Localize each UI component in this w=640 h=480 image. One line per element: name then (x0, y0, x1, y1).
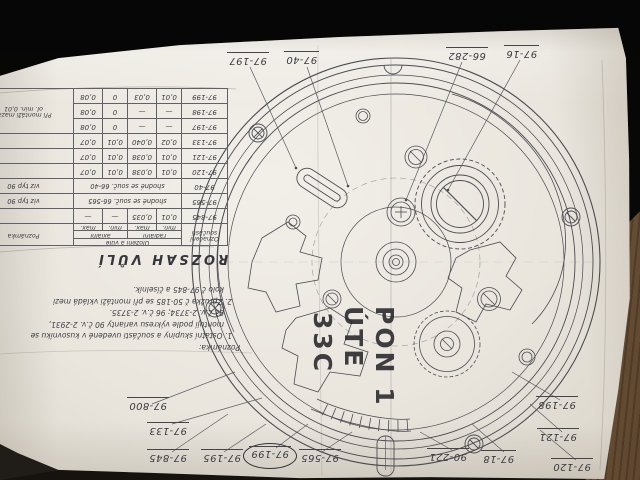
callout-97-40: 97-40 (284, 51, 319, 65)
table-row: 97-40shodné se souč. 66-40viz typ 90 (0, 179, 228, 194)
handwriting-line-3: 33C (307, 306, 338, 440)
callout-97-197: 97-197 (227, 52, 269, 66)
table-title: ROZSAH VŮLÍ (96, 250, 228, 266)
table-row: 97-1200,010,0380,010,07 (0, 164, 228, 179)
callout-97-800: 97-800 (127, 397, 169, 411)
col-header-max: max. (74, 224, 103, 232)
clearance-table: Označenísoučásti Uložení a vůle Poznámka… (0, 88, 228, 247)
table-row: 97-1330,020,0400,010,07 (0, 134, 228, 149)
callout-90-221: 90-221 (427, 448, 469, 462)
lubrication-note: Při montáži mazatol. min. 0,01 (0, 89, 74, 134)
table-row: 97-197——00,08 Při montáži mazatol. min. … (0, 119, 228, 134)
handwriting-line-2: ÚTE (338, 306, 369, 440)
col-header-part: Označenísoučásti (182, 224, 228, 247)
col-header-max: max. (128, 224, 157, 232)
table-row: 97-8450,010,035—— (0, 209, 228, 224)
table-row: 97-1210,010,0380,010,07 (0, 149, 228, 164)
callout-97-121: 97-121 (537, 428, 579, 442)
callout-97-16: 97-16 (504, 45, 539, 59)
callout-97-195: 97-195 (201, 449, 243, 463)
callout-97-133: 97-133 (147, 422, 189, 436)
table-row: 97-565shodné se souč. 66-565viz typ 90 (0, 194, 228, 209)
upside-down-text-layer: ROZSAH VŮLÍ Označenísoučásti Uložení a v… (0, 0, 640, 480)
col-header-fit: Uložení a vůle (74, 239, 182, 247)
callout-97-18: 97-18 (481, 450, 516, 464)
col-header-radial: radiální (128, 231, 182, 239)
callout-97-565: 97-565 (299, 449, 341, 463)
handwriting-line-1: PON 1 (369, 306, 400, 440)
callout-97-845: 97-845 (147, 449, 189, 463)
col-header-min: min. (103, 224, 128, 232)
handwritten-note: PON 1 ÚTE 33C (298, 306, 400, 440)
notes-heading: Poznámka: (0, 342, 240, 354)
callout-97-198: 97-198 (536, 396, 578, 410)
col-header-axial: axiální (74, 231, 128, 239)
col-header-min: min. (157, 224, 182, 232)
callout-66-282: 66-282 (446, 47, 488, 61)
callout-97-199: 97-199 (249, 446, 291, 459)
drawing-notes: Poznámka: 1. Ostatní skupiny a součásti … (0, 284, 240, 353)
callout-97-120: 97-120 (551, 458, 593, 472)
col-header-note: Poznámka (0, 224, 74, 247)
callout-97-199-circled: 97-199 (243, 443, 297, 469)
photo-scene: ROZSAH VŮLÍ Označenísoučásti Uložení a v… (0, 0, 640, 480)
